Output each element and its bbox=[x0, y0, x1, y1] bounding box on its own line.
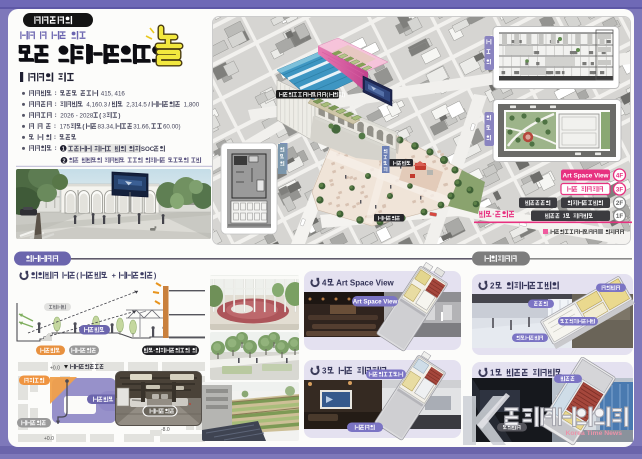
svg-text:+0.0: +0.0 bbox=[44, 436, 54, 442]
svg-text:175: 175 bbox=[60, 123, 71, 130]
svg-text:3F: 3F bbox=[616, 186, 623, 193]
svg-text:1,800: 1,800 bbox=[184, 101, 200, 108]
svg-text:4,160.3: 4,160.3 bbox=[86, 101, 107, 108]
svg-text:2026 - 2028: 2026 - 2028 bbox=[60, 112, 94, 119]
svg-text:Korea Time News: Korea Time News bbox=[565, 430, 622, 437]
svg-text:3: 3 bbox=[322, 367, 327, 376]
svg-text:1: 1 bbox=[62, 147, 65, 153]
svg-text:/: / bbox=[148, 101, 150, 108]
svg-text:-8.0: -8.0 bbox=[161, 427, 170, 433]
svg-text:SOC: SOC bbox=[141, 146, 155, 153]
svg-text:Art Space View: Art Space View bbox=[353, 299, 398, 306]
svg-text:31.66,: 31.66, bbox=[133, 123, 150, 130]
svg-text:1F: 1F bbox=[616, 213, 623, 220]
svg-text:+0.0: +0.0 bbox=[50, 366, 60, 372]
svg-text:): ) bbox=[118, 112, 120, 119]
svg-text:83.34,: 83.34, bbox=[98, 123, 115, 130]
svg-text:+: + bbox=[112, 271, 117, 280]
svg-text:4: 4 bbox=[322, 279, 327, 288]
svg-text:2F: 2F bbox=[616, 200, 623, 207]
svg-text:2,314.5: 2,314.5 bbox=[126, 101, 147, 108]
svg-text:4F: 4F bbox=[616, 172, 623, 179]
svg-text:60.00): 60.00) bbox=[163, 123, 181, 130]
svg-text:3: 3 bbox=[103, 112, 107, 119]
svg-text:1: 1 bbox=[563, 214, 566, 220]
svg-text:Art Space View: Art Space View bbox=[336, 279, 394, 288]
svg-text:1: 1 bbox=[490, 369, 495, 378]
svg-text:Art Space View: Art Space View bbox=[562, 173, 608, 180]
svg-text:415, 416: 415, 416 bbox=[101, 90, 126, 97]
svg-text:2: 2 bbox=[490, 282, 495, 291]
svg-text:2: 2 bbox=[63, 159, 66, 165]
svg-text:/: / bbox=[108, 101, 110, 108]
